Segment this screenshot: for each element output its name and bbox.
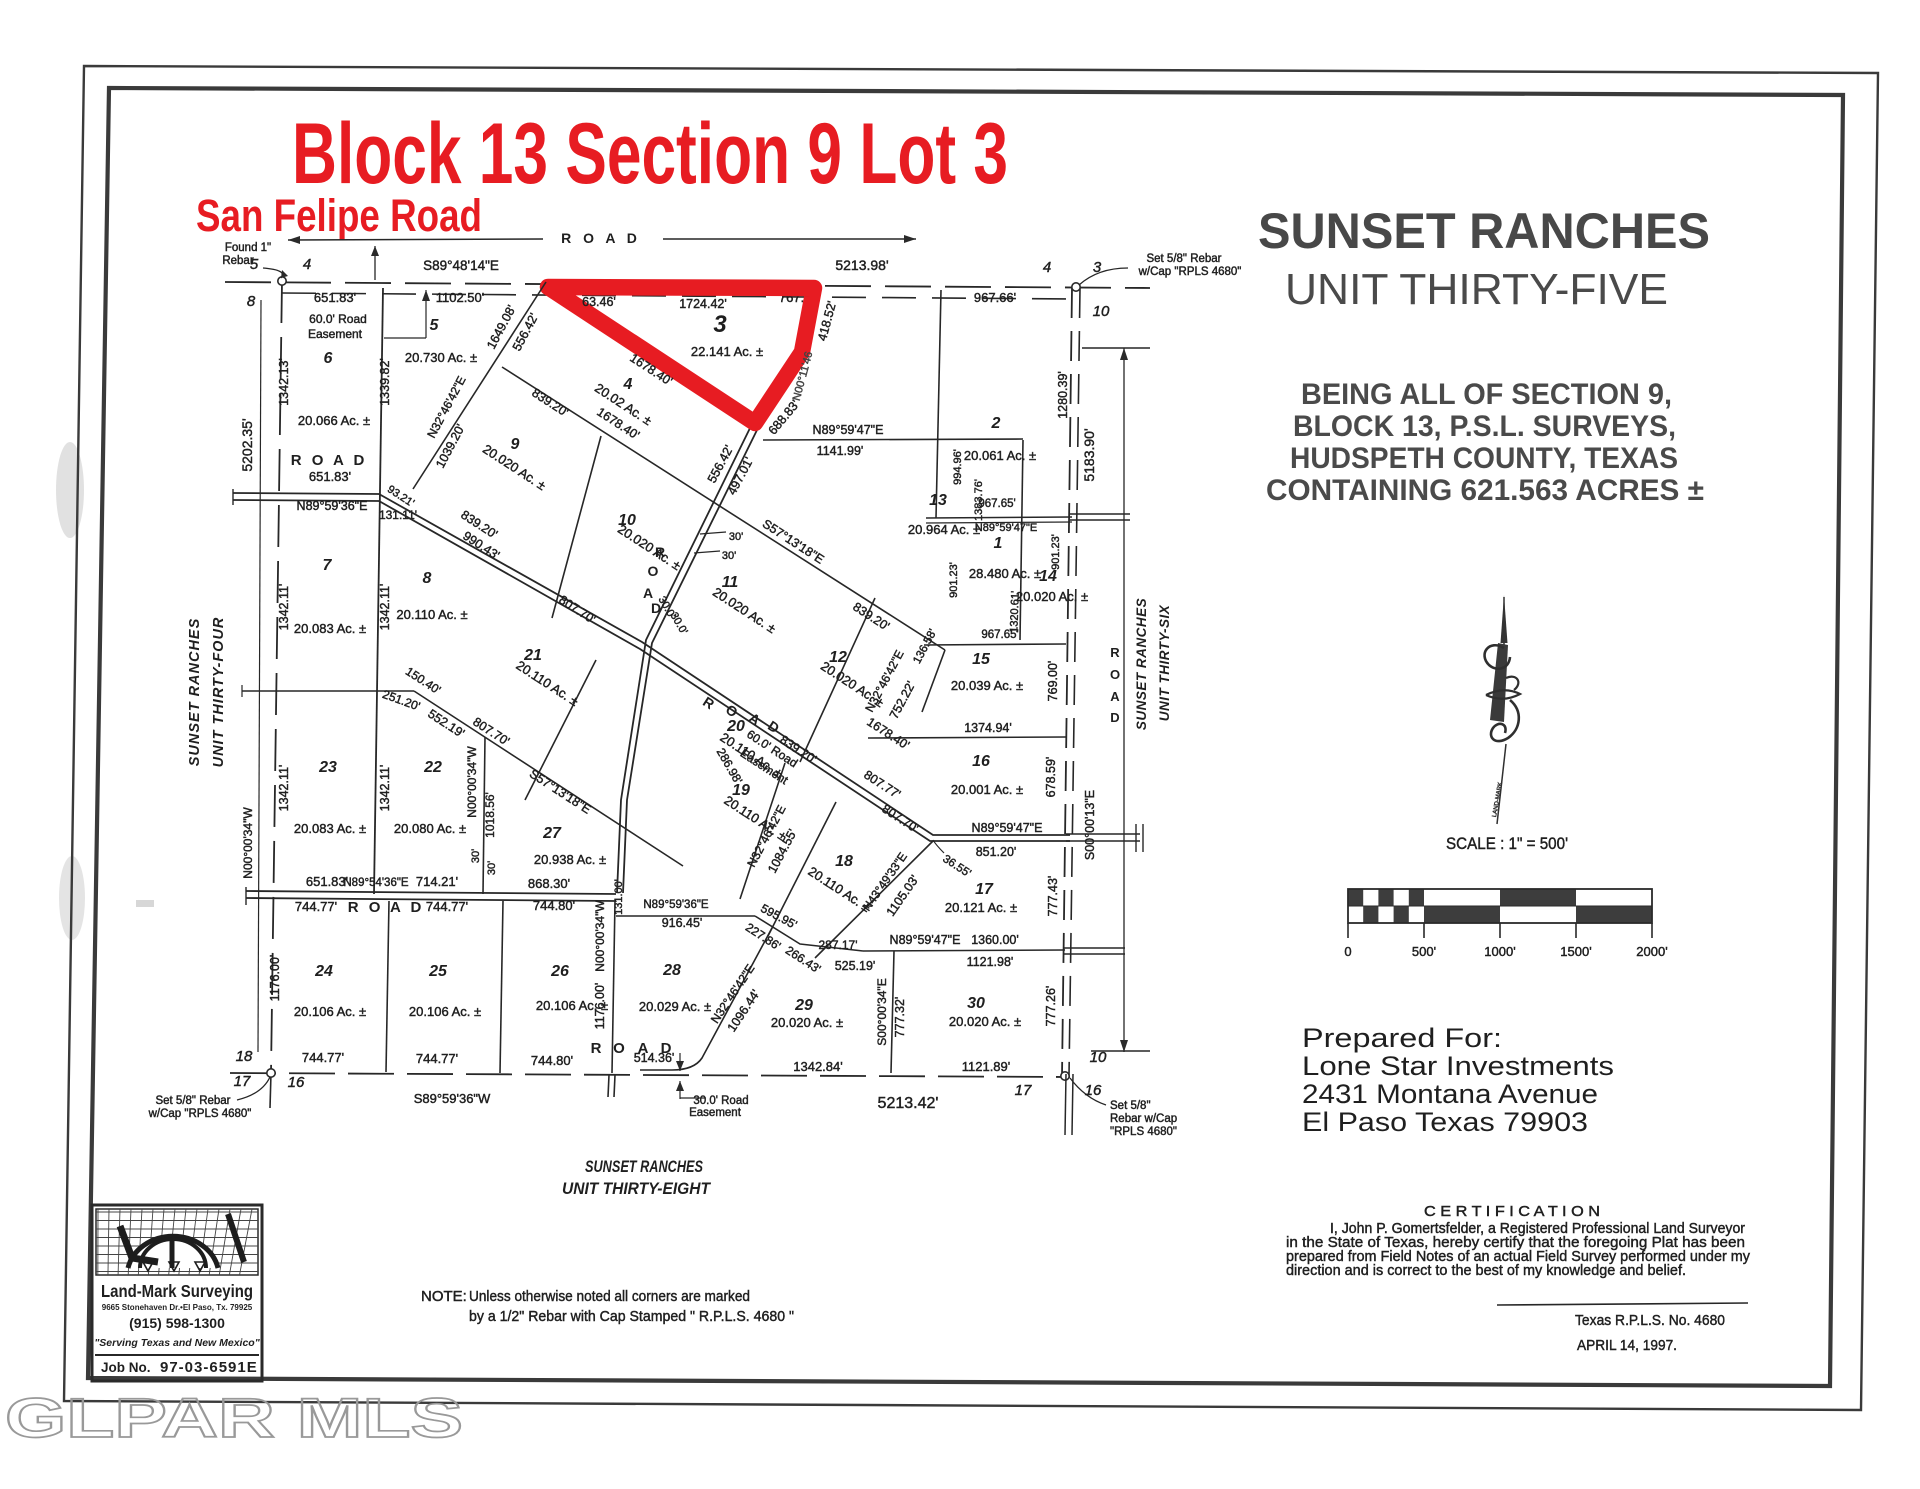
svg-text:1000': 1000' bbox=[1484, 944, 1515, 959]
svg-text:13: 13 bbox=[929, 492, 947, 509]
svg-text:Texas R.P.L.S. No. 4680: Texas R.P.L.S. No. 4680 bbox=[1575, 1312, 1725, 1329]
svg-text:1: 1 bbox=[994, 535, 1003, 552]
svg-text:30': 30' bbox=[722, 550, 736, 562]
svg-text:15: 15 bbox=[972, 651, 991, 668]
svg-text:C E R T I F I C A T I O N: C E R T I F I C A T I O N bbox=[1424, 1203, 1600, 1220]
svg-text:SCALE : 1" = 500': SCALE : 1" = 500' bbox=[1446, 834, 1568, 853]
svg-text:1121.98': 1121.98' bbox=[967, 955, 1014, 969]
svg-text:SUNSET RANCHES: SUNSET RANCHES bbox=[1258, 203, 1710, 259]
svg-text:Easement: Easement bbox=[689, 1107, 742, 1119]
svg-text:1374.94': 1374.94' bbox=[964, 721, 1012, 735]
svg-text:20.039 Ac. ±: 20.039 Ac. ± bbox=[951, 678, 1023, 693]
svg-text:UNIT THIRTY-SIX: UNIT THIRTY-SIX bbox=[1157, 604, 1172, 721]
svg-text:Prepared For:: Prepared For: bbox=[1302, 1023, 1502, 1053]
svg-text:N00°00'34"W: N00°00'34"W bbox=[241, 807, 255, 879]
svg-text:744.77': 744.77' bbox=[295, 899, 337, 914]
svg-text:25: 25 bbox=[428, 963, 448, 980]
svg-text:1500': 1500' bbox=[1560, 944, 1591, 959]
svg-text:20.106 Ac. ±: 20.106 Ac. ± bbox=[536, 998, 608, 1013]
svg-text:777.26': 777.26' bbox=[1044, 986, 1058, 1027]
svg-text:A: A bbox=[643, 585, 653, 601]
svg-text:Set 5/8" Rebar: Set 5/8" Rebar bbox=[155, 1095, 230, 1107]
svg-text:1280.39': 1280.39' bbox=[1056, 371, 1070, 419]
svg-text:R O A D: R O A D bbox=[561, 230, 641, 246]
svg-text:w/Cap "RPLS 4680": w/Cap "RPLS 4680" bbox=[1138, 266, 1242, 278]
svg-text:D: D bbox=[1110, 710, 1119, 725]
svg-text:651.83': 651.83' bbox=[314, 290, 356, 305]
svg-text:60.0' Road: 60.0' Road bbox=[309, 312, 367, 326]
svg-text:20.964 Ac. ±: 20.964 Ac. ± bbox=[908, 522, 980, 537]
svg-text:777.32': 777.32' bbox=[893, 997, 907, 1038]
svg-text:287.17': 287.17' bbox=[819, 938, 858, 952]
svg-text:5: 5 bbox=[250, 256, 259, 273]
svg-text:744.77': 744.77' bbox=[416, 1051, 458, 1066]
svg-text:967.65': 967.65' bbox=[978, 498, 1015, 510]
svg-text:5202.35': 5202.35' bbox=[239, 418, 255, 471]
svg-text:30: 30 bbox=[967, 995, 985, 1012]
svg-text:1342.13': 1342.13' bbox=[277, 358, 291, 406]
svg-text:20.020 Ac. ±: 20.020 Ac. ± bbox=[1016, 589, 1088, 604]
svg-text:23: 23 bbox=[318, 759, 337, 776]
svg-text:27: 27 bbox=[542, 825, 562, 842]
svg-text:HUDSPETH COUNTY, TEXAS: HUDSPETH COUNTY, TEXAS bbox=[1290, 442, 1678, 475]
svg-text:994.96': 994.96' bbox=[952, 449, 964, 485]
svg-text:5213.98': 5213.98' bbox=[835, 257, 888, 273]
svg-text:8: 8 bbox=[247, 293, 256, 310]
svg-text:APRIL 14, 1997.: APRIL 14, 1997. bbox=[1577, 1337, 1677, 1354]
svg-text:SUNSET RANCHES: SUNSET RANCHES bbox=[1134, 598, 1149, 730]
svg-text:Easement: Easement bbox=[308, 327, 363, 341]
svg-text:20.080 Ac. ±: 20.080 Ac. ± bbox=[394, 821, 466, 836]
svg-text:(915) 598-1300: (915) 598-1300 bbox=[129, 1315, 225, 1331]
svg-text:A: A bbox=[1110, 689, 1120, 704]
svg-text:BLOCK 13, P.S.L. SURVEYS,: BLOCK 13, P.S.L. SURVEYS, bbox=[1293, 410, 1676, 443]
svg-text:Set 5/8": Set 5/8" bbox=[1110, 1100, 1151, 1112]
svg-text:714.21': 714.21' bbox=[416, 874, 458, 889]
svg-text:20.029 Ac. ±: 20.029 Ac. ± bbox=[639, 999, 711, 1014]
svg-text:R: R bbox=[591, 1040, 602, 1057]
svg-text:20.020 Ac. ±: 20.020 Ac. ± bbox=[771, 1015, 843, 1030]
svg-text:916.45': 916.45' bbox=[662, 916, 703, 930]
svg-text:30': 30' bbox=[729, 531, 743, 543]
svg-text:Lone Star Investments: Lone Star Investments bbox=[1302, 1051, 1614, 1081]
svg-text:17: 17 bbox=[234, 1073, 251, 1090]
svg-text:2: 2 bbox=[991, 415, 1001, 432]
svg-text:D: D bbox=[661, 1040, 672, 1057]
svg-text:N89°59'36"E: N89°59'36"E bbox=[297, 499, 368, 513]
svg-text:678.59': 678.59' bbox=[1044, 757, 1058, 798]
svg-text:1121.89': 1121.89' bbox=[962, 1059, 1011, 1074]
svg-text:10: 10 bbox=[1093, 303, 1110, 320]
svg-text:N89°59'36"E: N89°59'36"E bbox=[643, 899, 709, 911]
svg-text:22: 22 bbox=[423, 759, 442, 776]
svg-text:28: 28 bbox=[662, 962, 681, 979]
svg-text:1342.11': 1342.11' bbox=[277, 584, 291, 631]
svg-text:1018.56': 1018.56' bbox=[483, 792, 497, 838]
svg-text:901.23': 901.23' bbox=[948, 562, 960, 598]
svg-text:w/Cap "RPLS 4680": w/Cap "RPLS 4680" bbox=[148, 1108, 252, 1120]
svg-text:7: 7 bbox=[323, 557, 333, 574]
svg-text:651.83': 651.83' bbox=[309, 469, 351, 484]
svg-text:direction and is correct to th: direction and is correct to the best of … bbox=[1286, 1262, 1686, 1279]
svg-text:63.46': 63.46' bbox=[582, 295, 616, 309]
svg-text:17: 17 bbox=[1015, 1082, 1032, 1099]
svg-text:Unless otherwise noted all cor: Unless otherwise noted all corners are m… bbox=[469, 1288, 750, 1305]
svg-text:BEING ALL OF SECTION 9,: BEING ALL OF SECTION 9, bbox=[1301, 378, 1672, 411]
svg-text:SUNSET RANCHES: SUNSET RANCHES bbox=[187, 618, 203, 767]
svg-text:"Serving Texas and New Mexico": "Serving Texas and New Mexico" bbox=[94, 1337, 260, 1349]
svg-text:744.80': 744.80' bbox=[533, 898, 575, 913]
svg-text:1176.00': 1176.00' bbox=[268, 955, 282, 1002]
svg-text:NOTE:: NOTE: bbox=[421, 1288, 467, 1305]
svg-text:14: 14 bbox=[1039, 568, 1057, 585]
svg-text:O: O bbox=[1110, 667, 1120, 682]
svg-text:1360.00': 1360.00' bbox=[971, 933, 1019, 947]
svg-text:4: 4 bbox=[1043, 259, 1051, 276]
svg-text:4: 4 bbox=[623, 376, 633, 393]
svg-text:9665 Stonehaven Dr.•El Paso, T: 9665 Stonehaven Dr.•El Paso, Tx. 79925 bbox=[102, 1303, 253, 1312]
svg-text:8: 8 bbox=[423, 570, 432, 587]
svg-text:R O A D: R O A D bbox=[291, 452, 368, 469]
svg-text:744.77': 744.77' bbox=[302, 1050, 344, 1065]
svg-text:A: A bbox=[638, 1040, 649, 1057]
svg-text:20.066 Ac. ±: 20.066 Ac. ± bbox=[298, 413, 370, 428]
svg-text:San Felipe Road: San Felipe Road bbox=[196, 190, 482, 241]
svg-text:1342.11': 1342.11' bbox=[378, 584, 392, 631]
svg-text:4: 4 bbox=[303, 256, 311, 273]
svg-text:868.30': 868.30' bbox=[528, 876, 570, 891]
svg-text:Land-Mark Surveying: Land-Mark Surveying bbox=[101, 1281, 253, 1301]
svg-text:851.20': 851.20' bbox=[976, 845, 1017, 859]
svg-text:"RPLS 4680": "RPLS 4680" bbox=[1110, 1126, 1177, 1138]
svg-text:N89°54'36"E: N89°54'36"E bbox=[343, 877, 409, 889]
svg-text:16: 16 bbox=[972, 753, 990, 770]
svg-text:30': 30' bbox=[486, 861, 498, 875]
svg-text:R O A D: R O A D bbox=[348, 899, 425, 916]
svg-text:Rebar w/Cap: Rebar w/Cap bbox=[1110, 1113, 1177, 1125]
svg-text:525.19': 525.19' bbox=[835, 959, 876, 973]
svg-text:1342.84': 1342.84' bbox=[793, 1059, 842, 1074]
svg-text:29: 29 bbox=[794, 997, 813, 1014]
svg-text:18: 18 bbox=[835, 853, 853, 870]
svg-text:Found 1": Found 1" bbox=[225, 242, 271, 254]
svg-text:777.43': 777.43' bbox=[1046, 876, 1060, 917]
svg-text:N89°59'47"E: N89°59'47"E bbox=[813, 423, 884, 437]
svg-text:N89°59'47"E: N89°59'47"E bbox=[972, 821, 1043, 835]
svg-text:967.66': 967.66' bbox=[974, 290, 1016, 305]
svg-text:744.77': 744.77' bbox=[426, 899, 468, 914]
svg-text:2000': 2000' bbox=[1636, 944, 1667, 959]
svg-text:28.480 Ac. ±: 28.480 Ac. ± bbox=[969, 566, 1041, 581]
svg-text:S89°48'14"E: S89°48'14"E bbox=[423, 258, 499, 273]
svg-text:UNIT THIRTY-EIGHT: UNIT THIRTY-EIGHT bbox=[562, 1179, 711, 1198]
svg-text:744.80': 744.80' bbox=[531, 1053, 573, 1068]
svg-text:20.110 Ac. ±: 20.110 Ac. ± bbox=[396, 607, 467, 622]
svg-text:N89°59'47"E: N89°59'47"E bbox=[975, 522, 1037, 534]
svg-text:Job No.: Job No. bbox=[101, 1360, 151, 1375]
svg-text:O: O bbox=[613, 1040, 625, 1057]
svg-text:3: 3 bbox=[713, 311, 727, 338]
svg-text:Set 5/8" Rebar: Set 5/8" Rebar bbox=[1146, 253, 1221, 265]
svg-text:30': 30' bbox=[470, 849, 482, 863]
svg-text:0: 0 bbox=[1344, 944, 1351, 959]
svg-text:R: R bbox=[1110, 645, 1120, 660]
svg-text:651.83': 651.83' bbox=[306, 874, 348, 889]
svg-text:5: 5 bbox=[430, 317, 440, 334]
svg-text:16: 16 bbox=[288, 1074, 305, 1091]
svg-text:1339.82': 1339.82' bbox=[378, 358, 392, 406]
svg-text:17: 17 bbox=[975, 881, 994, 898]
svg-text:S00°00'34"E: S00°00'34"E bbox=[875, 978, 889, 1045]
svg-text:1141.99': 1141.99' bbox=[817, 444, 864, 458]
svg-text:5183.90': 5183.90' bbox=[1081, 428, 1097, 481]
svg-text:5213.42': 5213.42' bbox=[878, 1095, 939, 1112]
svg-text:2431 Montana Avenue: 2431 Montana Avenue bbox=[1302, 1079, 1598, 1109]
svg-text:1342.11': 1342.11' bbox=[378, 765, 392, 812]
svg-text:GLPAR MLS: GLPAR MLS bbox=[5, 1386, 463, 1449]
svg-text:20.938 Ac. ±: 20.938 Ac. ± bbox=[534, 852, 606, 867]
svg-text:SUNSET RANCHES: SUNSET RANCHES bbox=[585, 1157, 703, 1176]
svg-text:24: 24 bbox=[314, 963, 333, 980]
svg-text:20.106 Ac. ±: 20.106 Ac. ± bbox=[409, 1004, 481, 1019]
svg-text:22.141 Ac. ±: 22.141 Ac. ± bbox=[691, 344, 763, 359]
svg-text:3: 3 bbox=[1093, 259, 1102, 276]
svg-text:97-03-6591E: 97-03-6591E bbox=[160, 1359, 258, 1376]
svg-text:N00°00'34"W: N00°00'34"W bbox=[465, 746, 479, 818]
svg-text:20.020 Ac. ±: 20.020 Ac. ± bbox=[949, 1014, 1021, 1029]
svg-text:20.106 Ac. ±: 20.106 Ac. ± bbox=[294, 1004, 366, 1019]
svg-text:26: 26 bbox=[550, 963, 569, 980]
svg-text:9: 9 bbox=[511, 436, 520, 453]
svg-text:769.00': 769.00' bbox=[1046, 661, 1060, 702]
svg-text:1102.50': 1102.50' bbox=[436, 290, 485, 305]
svg-text:20.121 Ac. ±: 20.121 Ac. ± bbox=[945, 900, 1017, 915]
svg-text:967.65': 967.65' bbox=[981, 629, 1018, 641]
svg-text:1724.42': 1724.42' bbox=[679, 297, 727, 311]
svg-text:1342.11': 1342.11' bbox=[277, 765, 291, 812]
svg-text:Block 13 Section 9 Lot 3: Block 13 Section 9 Lot 3 bbox=[292, 106, 1008, 202]
svg-text:500': 500' bbox=[1412, 944, 1436, 959]
svg-text:18: 18 bbox=[236, 1048, 253, 1065]
svg-text:16: 16 bbox=[1085, 1082, 1102, 1099]
svg-text:S89°59'36"W: S89°59'36"W bbox=[414, 1091, 491, 1106]
svg-text:20.730 Ac. ±: 20.730 Ac. ± bbox=[405, 350, 477, 365]
svg-text:20.083 Ac. ±: 20.083 Ac. ± bbox=[294, 821, 366, 836]
svg-text:S00°00'13"E: S00°00'13"E bbox=[1083, 790, 1097, 860]
svg-text:20.001 Ac. ±: 20.001 Ac. ± bbox=[951, 782, 1023, 797]
svg-text:6: 6 bbox=[324, 350, 333, 367]
svg-text:20.083 Ac. ±: 20.083 Ac. ± bbox=[294, 621, 366, 636]
svg-text:30.0' Road: 30.0' Road bbox=[693, 1095, 748, 1107]
svg-text:901.23': 901.23' bbox=[1050, 534, 1062, 570]
svg-text:by a 1/2" Rebar with Cap Stamp: by a 1/2" Rebar with Cap Stamped " R.P.L… bbox=[469, 1308, 794, 1325]
svg-text:20.061 Ac. ±: 20.061 Ac. ± bbox=[964, 448, 1036, 463]
svg-text:O: O bbox=[648, 563, 659, 579]
svg-text:El Paso Texas 79903: El Paso Texas 79903 bbox=[1302, 1107, 1588, 1137]
svg-text:N00°00'34"W: N00°00'34"W bbox=[593, 900, 607, 972]
svg-text:N89°59'47"E: N89°59'47"E bbox=[890, 933, 961, 947]
svg-text:10: 10 bbox=[1090, 1049, 1107, 1066]
svg-text:CONTAINING 621.563 ACRES ±: CONTAINING 621.563 ACRES ± bbox=[1266, 474, 1704, 507]
svg-text:UNIT THIRTY-FOUR: UNIT THIRTY-FOUR bbox=[211, 617, 227, 768]
svg-text:UNIT THIRTY-FIVE: UNIT THIRTY-FIVE bbox=[1285, 265, 1668, 314]
